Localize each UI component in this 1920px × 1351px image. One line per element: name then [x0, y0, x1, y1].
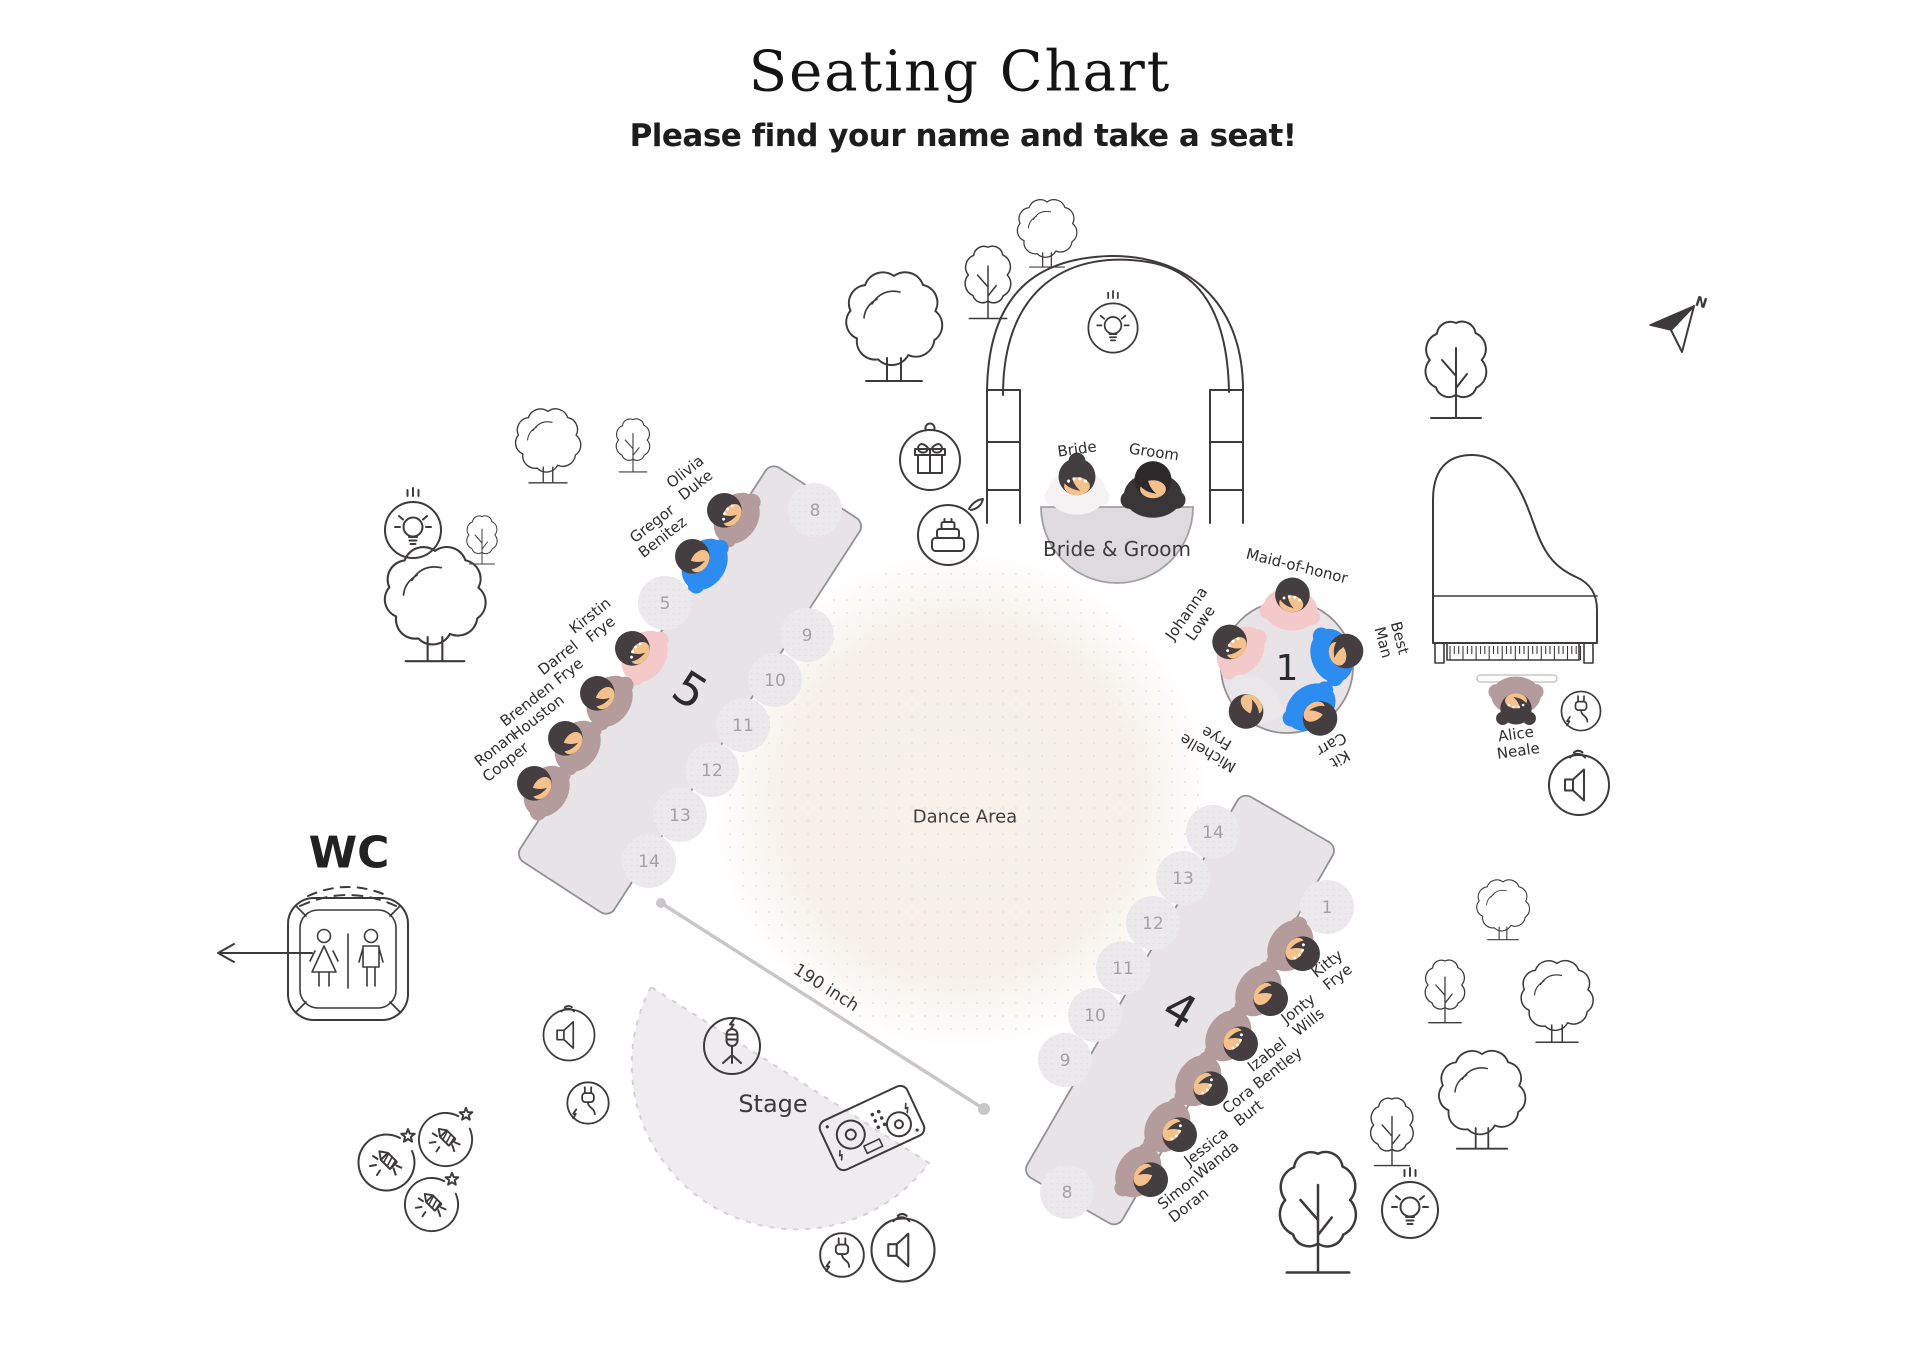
tree [1280, 1152, 1356, 1273]
tree [616, 419, 649, 472]
tree [965, 246, 1011, 318]
svg-text:5: 5 [660, 594, 671, 614]
empty-seat-11: 11 [716, 698, 770, 752]
svg-text:1: 1 [1276, 648, 1299, 689]
woman-icon [310, 930, 338, 987]
empty-seat-5: 5 [638, 576, 692, 630]
svg-text:12: 12 [701, 761, 723, 781]
empty-seat-9: 9 [780, 608, 834, 662]
bulb-icon [1088, 291, 1137, 353]
svg-text:10: 10 [1084, 1006, 1106, 1026]
svg-text:11: 11 [1112, 959, 1134, 979]
man-icon [359, 930, 383, 987]
speaker-icon [872, 1214, 935, 1281]
guest-bride [1045, 453, 1110, 515]
empty-seat-8: 8 [1040, 1165, 1094, 1219]
empty-seat-8: 8 [788, 483, 842, 537]
svg-text:9: 9 [802, 626, 813, 646]
tree [516, 409, 581, 483]
svg-text:10: 10 [764, 671, 786, 691]
empty-seat-13: 13 [653, 788, 707, 842]
speaker-icon [544, 1006, 595, 1061]
head-table-label: Bride & Groom [1043, 537, 1191, 561]
guest-label: Bride [1056, 437, 1097, 460]
tree [1426, 322, 1487, 418]
empty-seat-12: 12 [1126, 896, 1180, 950]
tree [1521, 961, 1593, 1043]
guest-groom [1121, 461, 1186, 518]
svg-text:9: 9 [1060, 1051, 1071, 1071]
svg-text:11: 11 [732, 716, 754, 736]
firework-icon [419, 1108, 472, 1166]
svg-text:8: 8 [810, 501, 821, 521]
page-subtitle: Please find your name and take a seat! [630, 118, 1297, 154]
plug-icon [1561, 691, 1600, 730]
empty-seat-14: 14 [622, 834, 676, 888]
svg-text:8: 8 [1062, 1183, 1073, 1203]
svg-text:14: 14 [1202, 823, 1224, 843]
svg-text:1: 1 [1322, 898, 1333, 918]
empty-seat-11: 11 [1096, 941, 1150, 995]
tree [467, 516, 497, 564]
empty-seat-14: 14 [1186, 805, 1240, 859]
tree [1477, 880, 1530, 940]
wc-label: WC [309, 828, 390, 879]
empty-seat-12: 12 [685, 743, 739, 797]
gift-icon [900, 423, 960, 490]
tree [1371, 1098, 1414, 1165]
wc-sign [218, 887, 408, 1020]
svg-text:14: 14 [638, 852, 660, 872]
bulb-icon [385, 488, 441, 558]
firework-icon [358, 1129, 414, 1191]
seating-chart-page: 15458910111213141141312111098BrideGroomM… [0, 0, 1920, 1351]
guest-alice-neale [1488, 677, 1543, 725]
piano [1433, 455, 1597, 682]
stage-label: Stage [738, 1090, 807, 1118]
tree [846, 272, 942, 381]
svg-text:13: 13 [1172, 869, 1194, 889]
empty-seat-13: 13 [1156, 851, 1210, 905]
page-title: Seating Chart [749, 40, 1172, 105]
bulb-icon [1382, 1168, 1438, 1238]
tree [1425, 960, 1465, 1023]
firework-icon [405, 1173, 458, 1231]
empty-seat-10: 10 [1068, 988, 1122, 1042]
wedding-arch [987, 256, 1243, 523]
svg-text:13: 13 [669, 806, 691, 826]
tree [1017, 200, 1077, 267]
speaker-icon [1549, 751, 1609, 815]
arrow-left-icon [218, 944, 312, 962]
seating-chart-canvas: 15458910111213141141312111098BrideGroomM… [0, 0, 1920, 1351]
empty-seat-10: 10 [748, 653, 802, 707]
dance-area-label: Dance Area [913, 807, 1017, 828]
tree [1439, 1051, 1525, 1149]
guest-label: OliviaDuke [663, 452, 718, 506]
guest-label: AliceNeale [1493, 722, 1540, 763]
guest-label: BestMan [1370, 620, 1412, 661]
plug-icon [567, 1082, 608, 1123]
north-arrow-icon [1650, 306, 1694, 352]
plug-icon [820, 1233, 864, 1277]
empty-seat-9: 9 [1038, 1033, 1092, 1087]
svg-text:12: 12 [1142, 914, 1164, 934]
guest-label: Groom [1128, 440, 1180, 465]
